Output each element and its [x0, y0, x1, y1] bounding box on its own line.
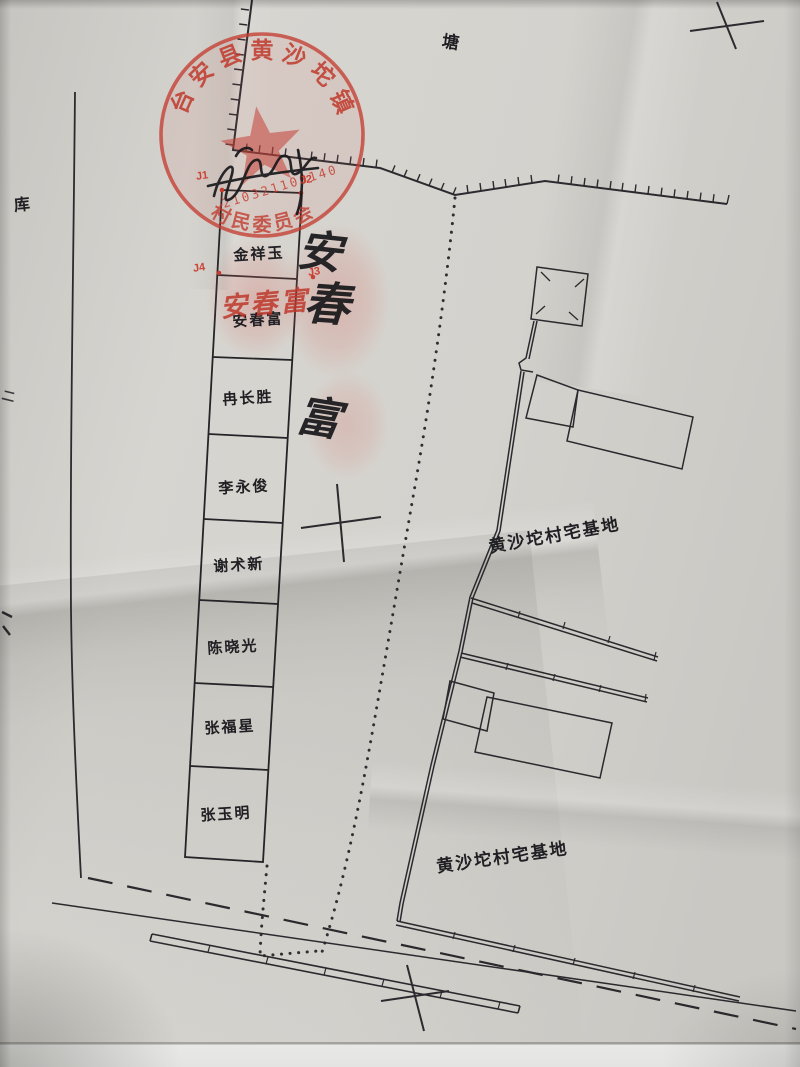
small-square-building	[531, 267, 588, 326]
survey-point-j2: J2	[299, 173, 313, 187]
red-handwritten-signature: 安春富	[218, 278, 311, 325]
square-corner-ticks	[536, 272, 584, 320]
building-b-annex	[443, 681, 494, 731]
compound-west-wall	[397, 371, 521, 921]
survey-map-linework: 台 安 县 黄 沙 坨 镇 村 民 委 员 会 210321100140	[0, 0, 800, 1067]
dashed-boundary-line	[88, 878, 796, 1029]
cross-top-right	[690, 2, 764, 49]
cross-middle	[301, 484, 381, 562]
paper-bottom-edge	[0, 1042, 800, 1067]
building-a-main	[567, 390, 693, 469]
seal-char: 黄	[251, 38, 274, 64]
vertical-handwriting-char: 春	[302, 266, 352, 335]
compound-wall-1	[471, 598, 658, 661]
bottom-roadworks	[52, 878, 796, 1029]
register-crosses	[301, 2, 764, 1031]
pond-label: 塘	[441, 33, 462, 52]
compound-west-wall-double	[400, 372, 524, 922]
ladder-strip	[150, 934, 520, 1013]
survey-point-j4: J4	[192, 261, 206, 275]
building-a-annex	[526, 375, 578, 427]
dotted-line-west	[260, 866, 318, 956]
seal-char: 委	[251, 214, 271, 236]
survey-point-j1: J1	[195, 169, 209, 183]
edge-mark	[2, 612, 12, 635]
west-boundary-line	[71, 92, 81, 878]
wall-1-joints	[518, 611, 656, 660]
homestead-compound	[396, 267, 740, 1001]
building-b-main	[475, 697, 612, 778]
ladder-strip-joints	[208, 945, 500, 1009]
edge-fragment-label: 二	[1, 388, 19, 404]
warehouse-label: 库	[13, 197, 33, 215]
photographed-survey-map: 台 安 县 黄 沙 坨 镇 村 民 委 员 会 210321100140	[0, 0, 800, 1067]
